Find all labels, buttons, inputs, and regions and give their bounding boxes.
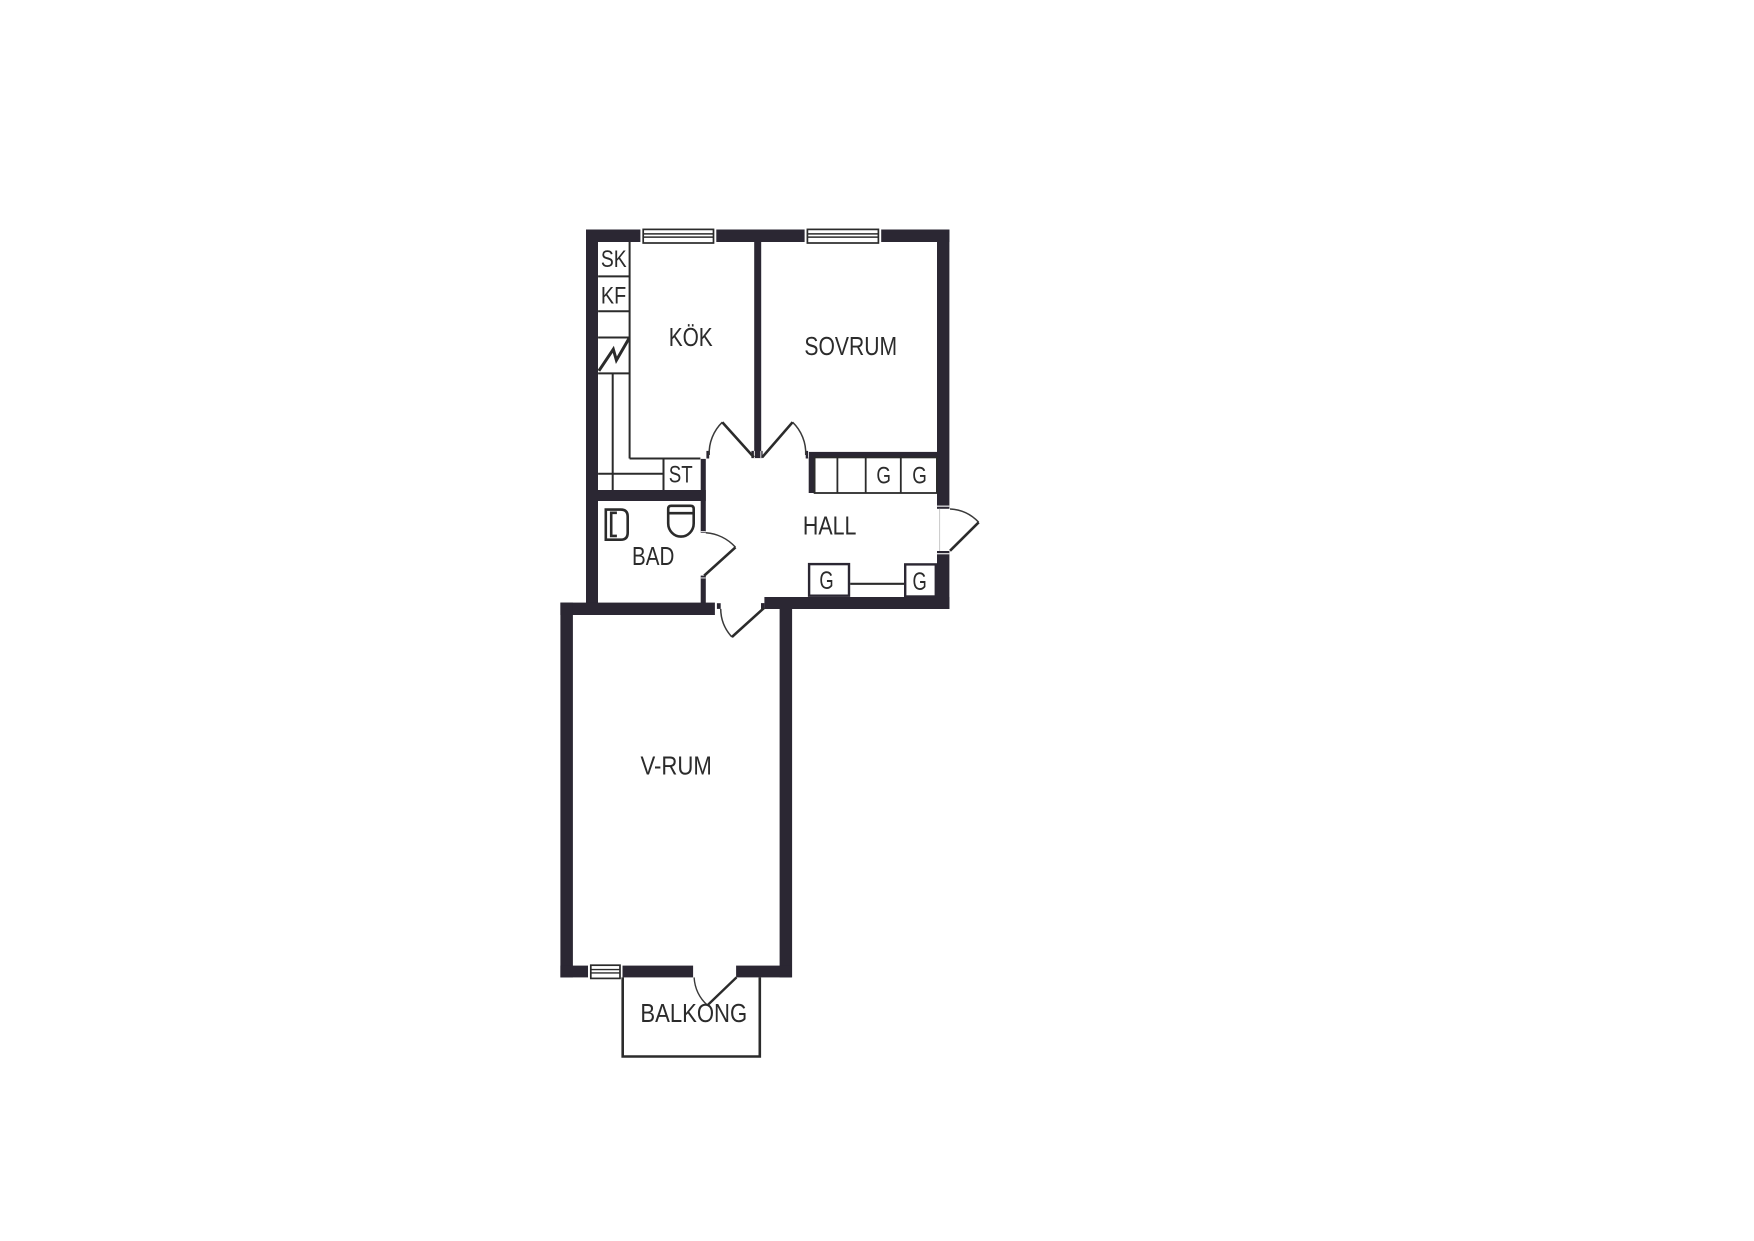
- svg-text:BALKONG: BALKONG: [640, 1000, 747, 1028]
- svg-text:KF: KF: [601, 282, 626, 309]
- svg-text:G: G: [913, 568, 927, 596]
- svg-text:G: G: [912, 462, 927, 489]
- svg-text:G: G: [876, 462, 891, 489]
- svg-text:HALL: HALL: [803, 513, 857, 541]
- svg-text:ST: ST: [669, 461, 693, 488]
- svg-text:V-RUM: V-RUM: [641, 753, 712, 781]
- svg-text:SK: SK: [601, 246, 627, 273]
- svg-text:KÖK: KÖK: [669, 324, 713, 352]
- svg-text:G: G: [819, 567, 833, 595]
- svg-text:SOVRUM: SOVRUM: [804, 333, 897, 361]
- svg-text:BAD: BAD: [632, 543, 674, 571]
